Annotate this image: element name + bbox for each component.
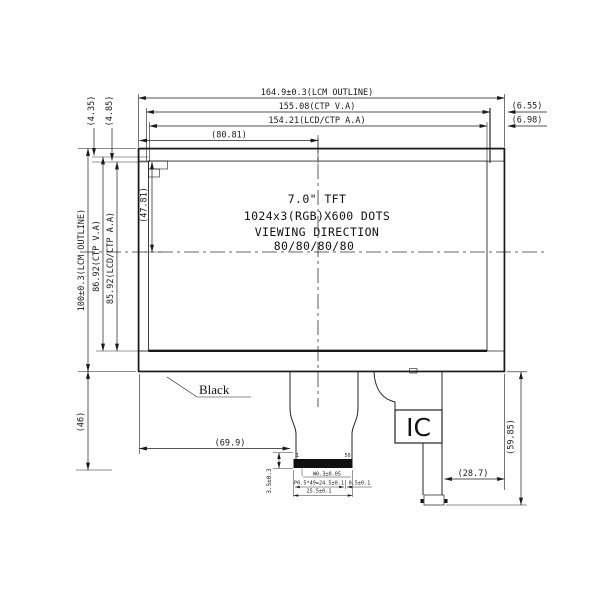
dim-label-pad-width: W0.3±0.05 bbox=[313, 472, 341, 478]
drawing-canvas: 7.0" TFT 1024x3(RGB)X600 DOTS VIEWING DI… bbox=[0, 0, 600, 600]
black-mask-bottom bbox=[139, 351, 504, 371]
lcm-outline bbox=[139, 149, 505, 372]
lcm-panel bbox=[139, 149, 505, 372]
pin-50-label: 50 bbox=[344, 453, 350, 459]
dim-label-gap-right-aa: (6.98) bbox=[512, 116, 543, 126]
dim-label-ic-tail-height: (59.85) bbox=[507, 419, 517, 455]
fpc-left-edge bbox=[290, 372, 296, 459]
dim-label-lcm-height: 100±0.3(LCM OUTLINE) bbox=[77, 209, 87, 311]
connector-side-mark bbox=[445, 499, 448, 503]
dim-label-gap-right-va: (6.55) bbox=[512, 102, 543, 112]
bottom-left-dimensions: (46) (69.9) bbox=[76, 372, 290, 471]
ic-fpc: IC (28.7) (59.85) bbox=[374, 369, 527, 506]
black-mask-top bbox=[139, 149, 504, 161]
dim-label-ctp-va-width: 155.08(CTP V.A) bbox=[279, 102, 356, 112]
black-mask-label: Black bbox=[199, 382, 230, 397]
black-mask-callout: Black bbox=[167, 377, 251, 397]
dim-label-pad-margin: 0.5±0.1 bbox=[349, 481, 371, 487]
main-fpc: 1 50 3.5±0.3 W0.3±0.05 P0.5*49=24.5±0.1 … bbox=[266, 372, 372, 497]
black-mask-right bbox=[487, 161, 504, 351]
dim-label-lcd-aa-height: 85.92(LCD/CTP A.A) bbox=[106, 212, 116, 304]
ic-tail-connector bbox=[424, 495, 444, 505]
display-resolution-text: 1024x3(RGB)X600 DOTS bbox=[244, 209, 390, 223]
dim-label-pad-pitch: P0.5*49=24.5±0.1 bbox=[294, 481, 344, 487]
fpc-right-edge bbox=[352, 372, 358, 459]
top-dimensions: 164.9±0.3(LCM OUTLINE) 155.08(CTP V.A) 1… bbox=[139, 88, 548, 163]
connector-side-mark bbox=[421, 499, 424, 503]
fpc-contact-bar bbox=[294, 459, 353, 468]
display-size-text: 7.0" TFT bbox=[288, 192, 347, 206]
dim-label-bottom-zone: (46) bbox=[77, 412, 87, 432]
dim-label-connector-width: 25.5±0.1 bbox=[307, 489, 332, 495]
dim-label-center-half-height: (47.81) bbox=[140, 187, 150, 223]
dim-label-fpc-stiffener: 3.5±0.3 bbox=[266, 468, 273, 494]
dim-label-gap-top-aa: (4.85) bbox=[105, 96, 115, 127]
dim-label-gap-top-va: (4.35) bbox=[87, 96, 97, 127]
display-spec-text: 7.0" TFT 1024x3(RGB)X600 DOTS VIEWING DI… bbox=[244, 192, 390, 253]
ic-fpc-left-curve bbox=[374, 372, 395, 410]
viewing-angles-text: 80/80/80/80 bbox=[274, 239, 355, 253]
viewing-direction-text: VIEWING DIRECTION bbox=[255, 225, 380, 239]
dim-label-lcd-aa-width: 154.21(LCD/CTP A.A) bbox=[268, 116, 365, 126]
corner-mark-2 bbox=[149, 169, 160, 177]
pin-1-label: 1 bbox=[296, 453, 299, 459]
lcd-mechanical-drawing: 7.0" TFT 1024x3(RGB)X600 DOTS VIEWING DI… bbox=[0, 0, 600, 600]
dim-label-center-offset: (80.81) bbox=[211, 131, 247, 141]
dim-label-ic-tail-offset: (28.7) bbox=[458, 469, 489, 479]
corner-mark-1 bbox=[149, 161, 168, 169]
dim-label-ctp-va-height: 86.92(CTP V.A) bbox=[92, 220, 102, 292]
ic-label: IC bbox=[406, 413, 431, 442]
dim-label-fpc-offset: (69.9) bbox=[215, 439, 246, 449]
dim-label-lcm-width: 164.9±0.3(LCM OUTLINE) bbox=[261, 88, 374, 98]
